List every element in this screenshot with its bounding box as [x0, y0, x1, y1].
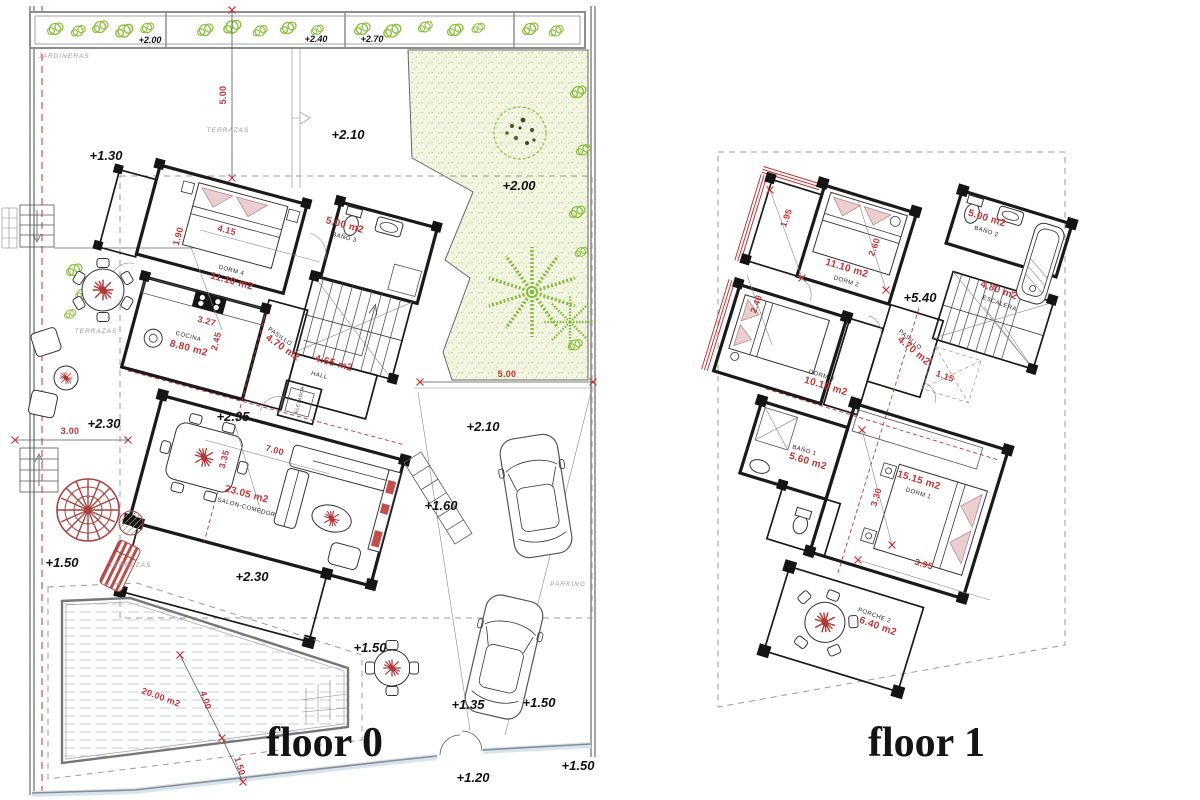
level-street-right: +1.50: [562, 758, 596, 773]
level-ramp: +1.60: [425, 498, 459, 513]
level-garden: +2.00: [503, 178, 537, 193]
planter-level-3: +2.70: [361, 34, 384, 44]
armchair-icon: [28, 390, 58, 419]
armchair-icon: [327, 542, 362, 571]
level-terrace-lower: +1.50: [46, 555, 80, 570]
dim-salon-width: 7.00: [264, 443, 285, 458]
parking-area: +2.10 +1.60 PARKING +1.35 +1.50: [404, 388, 591, 735]
side-table-hatched: [119, 511, 143, 535]
level-parking-spot: +1.50: [523, 695, 557, 710]
floor0-plan: +2.00 +2.40 +2.70 JARDINERAS 5.00 TERRAZ…: [2, 6, 597, 795]
porch-table-icon: [783, 581, 866, 663]
floor1-building: [626, 127, 1083, 709]
garden-area: +2.00 5.00: [408, 50, 597, 386]
exterior-steps-left: [20, 448, 58, 492]
entry-gate-door-arcs: [440, 731, 482, 755]
sink-icon: [375, 216, 404, 237]
level-main-floor1: +5.40: [904, 290, 938, 305]
parasol-icon: [57, 479, 119, 541]
svg-text:3.00: 3.00: [61, 426, 80, 436]
floor1-plan: 11.10 m2 DORM 2 5.00 m2 BAÑO 2 4.80 m2 E…: [626, 127, 1083, 766]
parking-label: PARKING: [550, 581, 586, 588]
sofa-set-icon: [267, 444, 401, 575]
room-label-cocina-area: 8.80 m2: [168, 338, 208, 359]
sink-icon: [748, 457, 771, 475]
svg-text:5.00: 5.00: [218, 86, 228, 105]
dim-dorm2-entry: 1.95: [778, 207, 794, 228]
svg-text:1.50: 1.50: [232, 756, 247, 777]
planter-level-2: +2.40: [305, 34, 328, 44]
floorplan-sheet: +2.00 +2.40 +2.70 JARDINERAS 5.00 TERRAZ…: [0, 0, 1200, 800]
svg-text:5.00: 5.00: [498, 369, 517, 379]
floorplan-canvas: +2.00 +2.40 +2.70 JARDINERAS 5.00 TERRAZ…: [0, 0, 1200, 800]
level-entry-left: +1.35: [452, 697, 486, 712]
level-terrace-upper: +1.30: [90, 148, 124, 163]
level-salon: +2.35: [217, 409, 251, 424]
planter-level-1: +2.00: [139, 35, 162, 45]
floor1-title: floor 1: [868, 720, 985, 766]
terrazas-left-label: TERRAZAS: [75, 328, 118, 335]
walkway-lines: [292, 48, 310, 188]
level-table-court: +1.50: [354, 640, 388, 655]
cocina-fixtures: [129, 277, 267, 373]
dim-cocina-width: 3.27: [196, 314, 217, 329]
level-terrace-tiles: +2.30: [236, 569, 270, 584]
terrazas-upper-label: TERRAZAS: [207, 127, 250, 134]
floor0-title: floor 0: [266, 720, 383, 766]
room-label-hall-name: HALL: [310, 371, 328, 381]
dim-hall-step: 1.15: [935, 368, 956, 384]
round-sink-icon: [142, 327, 164, 349]
bed-dorm4: [168, 179, 300, 272]
terrazas-lower-label: TERRAZAS: [109, 562, 152, 569]
planter-strip: +2.00 +2.40 +2.70: [30, 12, 585, 48]
car-icon: [494, 432, 578, 561]
level-path-right: +2.10: [332, 127, 366, 142]
level-street-entry: +1.20: [457, 770, 491, 785]
level-terrace-left: +2.30: [88, 416, 122, 431]
shower-tray: [388, 264, 422, 296]
jardineras-label: JARDINERAS: [37, 53, 89, 60]
lounge-corner: [28, 327, 78, 419]
wardrobe-strip: [852, 410, 983, 469]
level-parking-upper: +2.10: [467, 419, 501, 434]
dim-cocina-depth: 2.45: [209, 331, 224, 352]
